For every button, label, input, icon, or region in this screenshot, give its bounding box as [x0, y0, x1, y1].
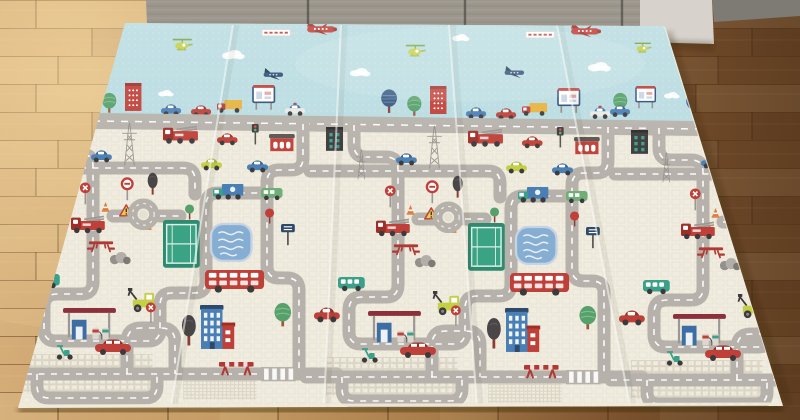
light-reflection: [295, 26, 645, 102]
play-mat-photo: Photograph of a large foldable children'…: [0, 0, 800, 420]
mat-bottom-shadow: [18, 408, 783, 411]
mat-bottom-edge: [18, 404, 783, 406]
play-mat: [1, 21, 800, 408]
photo-stage: Photograph of a large foldable children'…: [0, 0, 800, 420]
